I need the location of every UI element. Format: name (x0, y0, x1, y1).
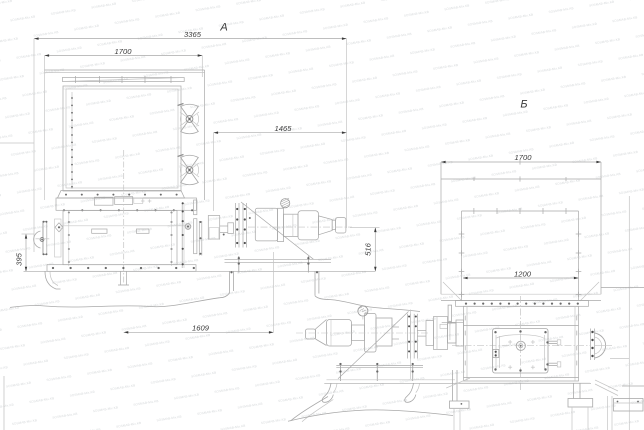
svg-text:1700: 1700 (115, 47, 133, 56)
svg-text:395: 395 (15, 252, 24, 265)
svg-text:1465: 1465 (275, 124, 293, 133)
svg-text:A: A (219, 22, 227, 34)
svg-text:1200: 1200 (514, 269, 532, 278)
svg-text:516: 516 (364, 242, 373, 255)
svg-text:Б: Б (520, 99, 527, 111)
svg-text:1700: 1700 (515, 153, 533, 162)
svg-text:3365: 3365 (184, 30, 202, 39)
svg-text:1609: 1609 (192, 324, 210, 333)
